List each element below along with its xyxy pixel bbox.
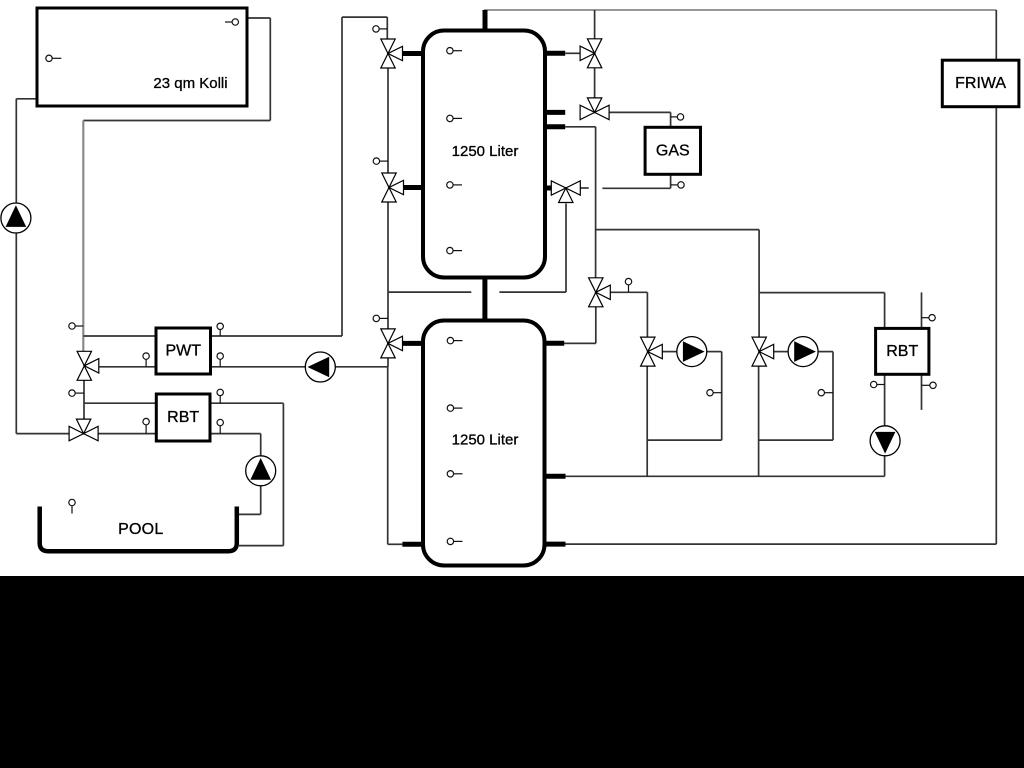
svg-text:1250 Liter: 1250 Liter bbox=[452, 431, 519, 448]
svg-text:PWT: PWT bbox=[165, 343, 201, 360]
svg-text:RBT: RBT bbox=[886, 343, 918, 360]
svg-text:FRIWA: FRIWA bbox=[955, 75, 1006, 92]
svg-text:GAS: GAS bbox=[656, 142, 690, 159]
svg-text:23 qm Kolli: 23 qm Kolli bbox=[153, 75, 227, 92]
svg-text:1250 Liter: 1250 Liter bbox=[452, 143, 519, 160]
svg-text:RBT: RBT bbox=[167, 409, 199, 426]
svg-text:POOL: POOL bbox=[118, 521, 163, 538]
